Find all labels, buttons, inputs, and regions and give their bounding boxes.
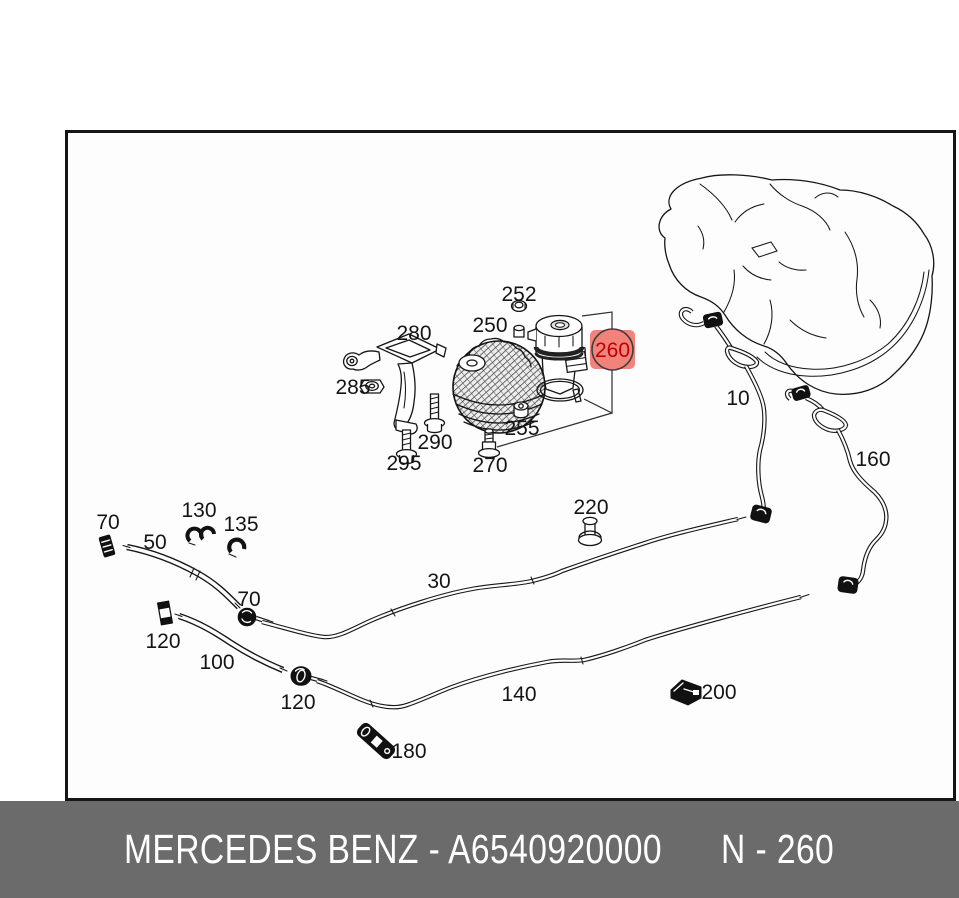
- fuel-pipe-10: [681, 309, 772, 523]
- callout-label-252[interactable]: 252: [501, 283, 536, 306]
- callout-label-120-left[interactable]: 120: [145, 630, 180, 653]
- callout-label-270[interactable]: 270: [472, 454, 507, 477]
- pin-220: [579, 517, 602, 545]
- clip-130: [187, 528, 214, 545]
- callout-label-220[interactable]: 220: [573, 496, 608, 519]
- callout-label-285[interactable]: 285: [335, 376, 370, 399]
- bolt-290: [425, 394, 445, 433]
- fuel-pipe-160: [787, 385, 886, 594]
- callout-label-160[interactable]: 160: [855, 448, 890, 471]
- caption-reference-number: N - 260: [721, 826, 834, 873]
- callout-label-260[interactable]: 260: [595, 339, 630, 362]
- connector-200: [671, 680, 701, 705]
- pipe-10-top-connector: [703, 312, 723, 328]
- diagram-canvas: 260 70 50 130 135 70 120 100 120 30 140 …: [0, 0, 959, 898]
- pipe-10-bottom-connector: [750, 504, 772, 523]
- plug-255: [514, 402, 528, 418]
- callout-label-180[interactable]: 180: [391, 740, 426, 763]
- callout-label-10[interactable]: 10: [726, 387, 749, 410]
- callout-label-130[interactable]: 130: [181, 499, 216, 522]
- fuel-hose-50: [123, 546, 240, 609]
- callout-label-135[interactable]: 135: [223, 513, 258, 536]
- fuel-pipe-30: [256, 517, 746, 637]
- callout-label-250[interactable]: 250: [472, 314, 507, 337]
- filter-element-260: [528, 316, 582, 360]
- callout-label-255[interactable]: 255: [504, 417, 539, 440]
- callout-label-290[interactable]: 290: [417, 431, 452, 454]
- callout-label-30[interactable]: 30: [427, 570, 450, 593]
- parts-diagram-page: 260 70 50 130 135 70 120 100 120 30 140 …: [0, 0, 959, 898]
- callout-label-200[interactable]: 200: [701, 681, 736, 704]
- fuel-tank-drawing: [659, 175, 934, 395]
- callout-label-295[interactable]: 295: [386, 452, 421, 475]
- callout-label-140[interactable]: 140: [501, 683, 536, 706]
- caption-bar: MERCEDES BENZ - A6540920000 N - 260: [0, 801, 959, 898]
- connector-180: [355, 721, 396, 760]
- callout-label-70-mid[interactable]: 70: [237, 588, 260, 611]
- callout-label-280[interactable]: 280: [396, 322, 431, 345]
- caption-text: MERCEDES BENZ - A6540920000 N - 260: [124, 826, 834, 873]
- callout-label-100[interactable]: 100: [199, 651, 234, 674]
- pipe-160-bottom-connector: [838, 576, 859, 593]
- clip-135: [229, 540, 244, 557]
- grommet-120-mid: [291, 667, 311, 686]
- tank-strap: [757, 270, 929, 376]
- housing-inlet: [514, 325, 524, 337]
- caption-brand-part-number: MERCEDES BENZ - A6540920000: [124, 826, 662, 873]
- fitting-120-left: [158, 601, 173, 625]
- callout-label-50[interactable]: 50: [143, 531, 166, 554]
- callout-label-70-left[interactable]: 70: [96, 511, 119, 534]
- callout-label-120-mid[interactable]: 120: [280, 691, 315, 714]
- highlight-badge-260[interactable]: 260: [590, 329, 635, 370]
- clip-70-left: [99, 535, 115, 557]
